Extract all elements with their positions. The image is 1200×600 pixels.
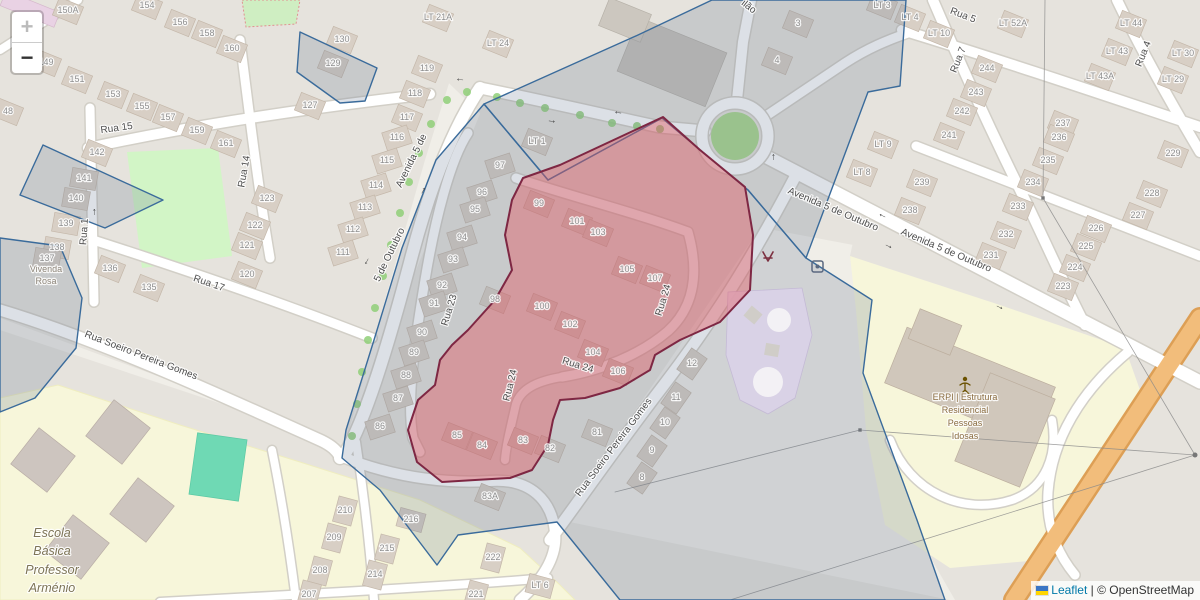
- house-number: 225: [1078, 241, 1093, 251]
- house-number: LT 6: [531, 580, 548, 590]
- oneway-arrow-icon: →: [88, 207, 99, 217]
- house-number: 94: [457, 232, 467, 242]
- house-number: 123: [259, 193, 274, 203]
- house-number: 95: [470, 204, 480, 214]
- house-number: 104: [585, 347, 600, 357]
- house-number: 116: [390, 132, 404, 142]
- house-number: 236: [1051, 132, 1066, 142]
- zoom-out-button[interactable]: −: [12, 43, 42, 73]
- house-number: 83: [518, 435, 528, 445]
- house-number: 239: [914, 177, 929, 187]
- house-number: 244: [979, 63, 994, 73]
- house-number: 100: [534, 301, 549, 311]
- house-number: 238: [902, 205, 917, 215]
- house-number: 93: [448, 254, 458, 264]
- house-number: 115: [380, 155, 394, 165]
- house-number: 138: [49, 242, 64, 252]
- house-number: 210: [337, 505, 352, 515]
- house-number: 117: [400, 112, 414, 122]
- poi-label-escola: Escola: [33, 526, 71, 540]
- house-number: 130: [334, 34, 349, 44]
- house-number: 102: [562, 319, 577, 329]
- house-number: 241: [941, 130, 956, 140]
- house-number: 103: [590, 227, 605, 237]
- poi-label-erpi: Residencial: [942, 405, 989, 415]
- house-number: 214: [367, 569, 382, 579]
- house-number: 207: [301, 589, 316, 599]
- poi-label-vivenda: Rosa: [35, 276, 56, 286]
- house-number: 127: [302, 100, 317, 110]
- map-canvas[interactable]: 150A154156158160149151153155157159161481…: [0, 0, 1200, 600]
- oneway-arrow-icon: →: [455, 75, 466, 87]
- house-number: 11: [671, 392, 680, 402]
- house-number: 122: [247, 220, 262, 230]
- house-number: 92: [437, 280, 447, 290]
- house-number: LT 43: [1106, 46, 1128, 56]
- map-tiles: 150A154156158160149151153155157159161481…: [0, 0, 1200, 600]
- house-number: 139: [58, 218, 73, 228]
- house-number: 89: [409, 347, 419, 357]
- poi-label-vivenda: Vivenda: [30, 264, 62, 274]
- house-number: 228: [1144, 188, 1159, 198]
- house-number: 155: [134, 101, 149, 111]
- poi-label-erpi: Idosas: [952, 431, 979, 441]
- house-number: LT 8: [853, 167, 870, 177]
- house-number: 231: [983, 250, 998, 260]
- poi-label-erpi: Pessoas: [948, 418, 983, 428]
- house-number: LT 52A: [999, 18, 1027, 28]
- house-number: 121: [239, 240, 254, 250]
- house-number: 82: [545, 443, 555, 453]
- house-number: 154: [139, 0, 154, 10]
- zoom-in-button[interactable]: +: [12, 12, 42, 43]
- poi-label-escola: Professor: [25, 563, 79, 577]
- oneway-arrow-icon: →: [546, 114, 557, 126]
- house-number: 12: [687, 358, 697, 368]
- house-number: LT 24: [487, 38, 509, 48]
- house-number: 101: [569, 216, 584, 226]
- house-number: 99: [534, 198, 544, 208]
- house-number: 227: [1130, 210, 1145, 220]
- house-number: 161: [218, 138, 233, 148]
- house-number: 112: [346, 224, 360, 234]
- house-number: 160: [224, 43, 239, 53]
- house-number: 137: [39, 253, 54, 263]
- house-number: 157: [160, 112, 175, 122]
- house-number: 4: [774, 55, 779, 65]
- house-number: 97: [495, 160, 505, 170]
- attribution-bar: Leaflet | © OpenStreetMap: [1031, 581, 1200, 600]
- zoom-control: + −: [10, 10, 44, 75]
- house-number: 107: [647, 273, 662, 283]
- house-number: 83A: [482, 491, 498, 501]
- house-number: 229: [1165, 148, 1180, 158]
- house-number: 129: [325, 58, 340, 68]
- house-number: 119: [420, 63, 434, 73]
- house-number: 237: [1055, 118, 1070, 128]
- house-number: 98: [490, 294, 500, 304]
- house-number: 120: [239, 269, 254, 279]
- house-number: LT 43A: [1086, 71, 1114, 81]
- house-number: 142: [89, 147, 104, 157]
- house-number: 88: [401, 370, 411, 380]
- house-number: 140: [68, 193, 83, 203]
- oneway-arrow-icon: →: [767, 152, 778, 162]
- house-number: 215: [379, 543, 394, 553]
- osm-credit: © OpenStreetMap: [1097, 583, 1194, 597]
- house-number: 114: [369, 180, 383, 190]
- house-number: 222: [485, 552, 500, 562]
- house-number: 136: [102, 263, 117, 273]
- house-number: 141: [76, 173, 91, 183]
- house-number: 159: [189, 125, 204, 135]
- house-number: LT 30: [1172, 48, 1194, 58]
- house-number: 135: [141, 282, 156, 292]
- house-number: 232: [998, 229, 1013, 239]
- house-number: 235: [1040, 155, 1055, 165]
- house-number: 243: [968, 87, 983, 97]
- house-number: 96: [477, 187, 487, 197]
- house-number: 118: [408, 88, 422, 98]
- house-number: 209: [326, 532, 341, 542]
- house-number: LT 9: [874, 139, 891, 149]
- oneway-arrow-icon: →: [612, 107, 623, 119]
- house-number: 105: [619, 264, 634, 274]
- house-number: 221: [468, 589, 483, 599]
- house-number: 111: [336, 247, 350, 257]
- poi-label-escola: Básica: [33, 544, 71, 558]
- house-number: 48: [3, 106, 13, 116]
- house-number: 106: [610, 366, 625, 376]
- house-number: 3: [795, 18, 800, 28]
- street-name: Rua 1: [78, 218, 91, 246]
- house-number: 90: [417, 327, 427, 337]
- house-number: 113: [358, 202, 372, 212]
- house-number: LT 4: [901, 12, 918, 22]
- house-number: LT 29: [1162, 74, 1184, 84]
- house-number: 85: [452, 430, 462, 440]
- house-number: 234: [1025, 177, 1040, 187]
- house-number: 86: [375, 421, 385, 431]
- house-number: LT 44: [1120, 18, 1142, 28]
- house-number: 156: [172, 17, 187, 27]
- house-number: 226: [1088, 223, 1103, 233]
- house-number: LT 1: [528, 136, 545, 146]
- house-number: 150A: [57, 5, 78, 15]
- house-number: 153: [105, 89, 120, 99]
- house-number: 158: [199, 28, 214, 38]
- house-number: 9: [649, 445, 654, 455]
- house-number: 233: [1010, 201, 1025, 211]
- house-number: 81: [592, 427, 602, 437]
- house-number: LT 3: [873, 0, 890, 10]
- poi-label-escola: Arménio: [28, 581, 76, 595]
- house-number: LT 21A: [424, 12, 452, 22]
- house-number: 223: [1055, 281, 1070, 291]
- house-number: 216: [403, 514, 418, 524]
- house-number: 10: [660, 417, 670, 427]
- attribution-separator: |: [1087, 583, 1097, 597]
- house-number: 224: [1067, 262, 1082, 272]
- leaflet-link[interactable]: Leaflet: [1051, 583, 1087, 597]
- house-number: 87: [393, 393, 403, 403]
- house-number: 242: [954, 106, 969, 116]
- house-number: 8: [639, 472, 644, 482]
- poi-label-erpi: ERPI | Estrutura: [933, 392, 998, 402]
- house-number: 91: [429, 298, 439, 308]
- ukraine-flag-icon: [1036, 586, 1048, 595]
- house-number: 84: [477, 440, 487, 450]
- house-number: 151: [69, 74, 84, 84]
- house-number: 208: [312, 565, 327, 575]
- house-number: LT 10: [928, 28, 950, 38]
